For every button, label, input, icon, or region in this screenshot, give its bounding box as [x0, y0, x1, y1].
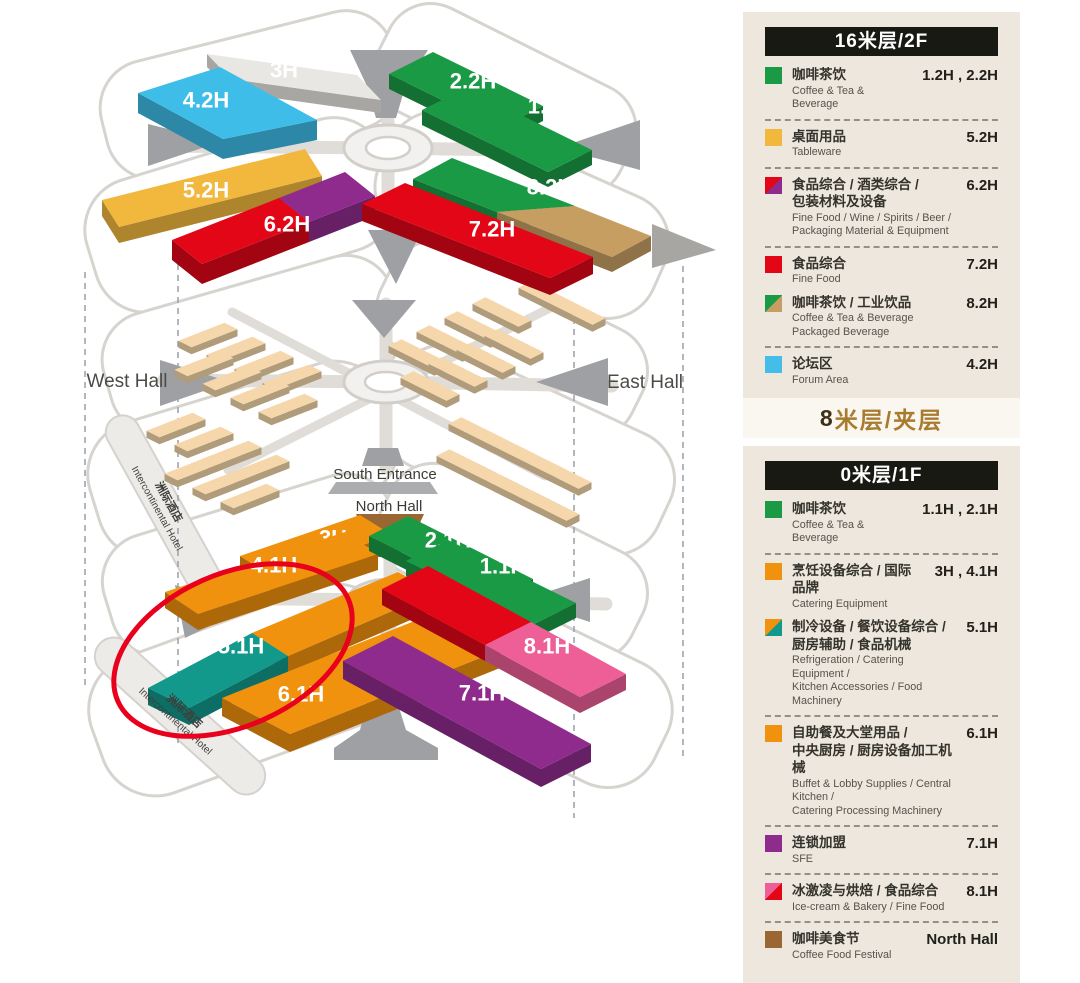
category-name-cn: 冰激凌与烘焙 / 食品综合 [792, 882, 956, 900]
mezzanine-title: 8 [820, 405, 835, 432]
category-name-cn: 连锁加盟 [792, 834, 956, 852]
legend-item-3H-4.1H: 烹饪设备综合 / 国际品牌Catering Equipment3H , 4.1H [765, 562, 998, 612]
hall-code: 1.1H , 2.1H [922, 501, 998, 518]
legend-item-4.2H: 论坛区Forum Area4.2H [765, 355, 998, 387]
legend-header-2f: 16米层/2F [765, 27, 998, 56]
category-name-cn: 自助餐及大堂用品 /中央厨房 / 厨房设备加工机械 [792, 724, 956, 777]
category-swatch [765, 835, 782, 852]
hall-code: North Hall [926, 931, 998, 948]
category-name-en: Refrigeration / Catering Equipment /Kitc… [792, 654, 956, 708]
dashed-separator [765, 825, 998, 827]
hall-label-7.1H: 7.1H [459, 681, 505, 706]
category-name-en: Fine Food / Wine / Spirits / Beer /Packa… [792, 212, 956, 239]
east-hall-label: East Hall [607, 372, 683, 393]
north-hall-label: North Hall [356, 498, 423, 515]
ramp-2f-east [652, 224, 716, 268]
category-name-en: Tableware [792, 146, 956, 159]
category-swatch [765, 883, 782, 900]
legend-item-7.1H: 连锁加盟SFE7.1H [765, 834, 998, 866]
dashed-separator [765, 246, 998, 248]
hall-code: 6.2H [966, 177, 998, 194]
dashed-separator [765, 553, 998, 555]
legend-item-5.2H: 桌面用品Tableware5.2H [765, 128, 998, 160]
hall-label-5.1H: 5.1H [218, 634, 264, 659]
category-swatch [765, 67, 782, 84]
hall-label-7.2H: 7.2H [469, 217, 515, 242]
category-name-en: Coffee & Tea & Beverage [792, 519, 912, 546]
category-name-cn: 食品综合 / 酒类综合 /包装材料及设备 [792, 176, 956, 211]
category-name-cn: 咖啡茶饮 [792, 500, 912, 518]
dashed-separator [765, 346, 998, 348]
category-swatch [765, 725, 782, 742]
category-swatch [765, 295, 782, 312]
hall-label-4.2H: 4.2H [183, 88, 229, 113]
hall-label-8.1H: 8.1H [524, 634, 570, 659]
hall-label-8.2H: 8.2H [527, 175, 573, 200]
category-swatch [765, 501, 782, 518]
west-hall-label: West Hall [87, 371, 168, 392]
category-name-cn: 烹饪设备综合 / 国际品牌 [792, 562, 925, 597]
category-name-en: Catering Equipment [792, 598, 925, 611]
hall-label-5.2H: 5.2H [183, 178, 229, 203]
legend-section-2f: 16米层/2F 咖啡茶饮Coffee & Tea & Beverage1.2H … [743, 12, 1020, 408]
venue-map: 3H4.2H2.2H1.2H5.2H6.2H8.2H7.2H3H4.1H2.1H… [0, 0, 745, 907]
category-name-cn: 咖啡美食节 [792, 930, 916, 948]
south-entrance-label: South Entrance [333, 466, 436, 483]
category-name-en: Coffee & Tea & BeveragePackaged Beverage [792, 312, 956, 339]
category-name-en: Ice-cream & Bakery / Fine Food [792, 901, 956, 914]
category-swatch [765, 256, 782, 273]
category-name-cn: 桌面用品 [792, 128, 956, 146]
legend-item-1.2H-2.2H: 咖啡茶饮Coffee & Tea & Beverage1.2H , 2.2H [765, 66, 998, 112]
category-swatch [765, 931, 782, 948]
category-name-en: Coffee Food Festival [792, 949, 916, 962]
hall-code: 4.2H [966, 356, 998, 373]
hall-label-3H: 3H [270, 58, 298, 83]
legend-item-6.1H: 自助餐及大堂用品 /中央厨房 / 厨房设备加工机械Buffet & Lobby … [765, 724, 998, 818]
hall-code: 6.1H [966, 725, 998, 742]
hall-code: 7.1H [966, 835, 998, 852]
legend-item-7.2H: 食品综合Fine Food7.2H [765, 255, 998, 287]
category-name-en: Fine Food [792, 273, 956, 286]
legend-item-5.1H: 制冷设备 / 餐饮设备综合 /厨房辅助 / 食品机械Refrigeration … [765, 618, 998, 708]
hall-label-1.1H: 1.1H [480, 554, 526, 579]
dashed-separator [765, 167, 998, 169]
category-name-en: Buffet & Lobby Supplies / Central Kitche… [792, 778, 956, 818]
category-swatch [765, 129, 782, 146]
category-name-cn: 食品综合 [792, 255, 956, 273]
legend-item-North-Hall: 咖啡美食节Coffee Food FestivalNorth Hall [765, 930, 998, 962]
hall-label-6.2H: 6.2H [264, 212, 310, 237]
category-name-cn: 咖啡茶饮 / 工业饮品 [792, 294, 956, 312]
hall-code: 8.2H [966, 295, 998, 312]
legend-item-6.2H: 食品综合 / 酒类综合 /包装材料及设备Fine Food / Wine / S… [765, 176, 998, 239]
hall-code: 8.1H [966, 883, 998, 900]
category-name-cn: 咖啡茶饮 [792, 66, 912, 84]
category-swatch [765, 356, 782, 373]
south-entrance-platform [328, 482, 438, 494]
hall-code: 1.2H , 2.2H [922, 67, 998, 84]
dashed-separator [765, 873, 998, 875]
hall-label-1.2H: 1.2H [528, 94, 574, 119]
hall-label-2.2H: 2.2H [450, 69, 496, 94]
legend-item-8.2H: 咖啡茶饮 / 工业饮品Coffee & Tea & BeveragePackag… [765, 294, 998, 340]
mezzanine-strip: 8米层/夹层 [743, 398, 1020, 438]
category-name-cn: 制冷设备 / 餐饮设备综合 /厨房辅助 / 食品机械 [792, 618, 956, 653]
hall-code: 5.2H [966, 129, 998, 146]
south-entrance-arrow [362, 448, 404, 466]
dashed-separator [765, 921, 998, 923]
hall-code: 7.2H [966, 256, 998, 273]
category-swatch [765, 177, 782, 194]
dashed-separator [765, 715, 998, 717]
dashed-separator [765, 119, 998, 121]
legend-section-1f: 0米层/1F 咖啡茶饮Coffee & Tea & Beverage1.1H ,… [743, 446, 1020, 983]
category-swatch [765, 619, 782, 636]
legend-header-1f: 0米层/1F [765, 461, 998, 490]
category-name-cn: 论坛区 [792, 355, 956, 373]
hall-code: 3H , 4.1H [935, 563, 998, 580]
hall-code: 5.1H [966, 619, 998, 636]
legend-item-8.1H: 冰激凌与烘焙 / 食品综合Ice-cream & Bakery / Fine F… [765, 882, 998, 914]
category-name-en: Forum Area [792, 374, 956, 387]
category-swatch [765, 563, 782, 580]
category-name-en: Coffee & Tea & Beverage [792, 85, 912, 112]
legend-item-1.1H-2.1H: 咖啡茶饮Coffee & Tea & Beverage1.1H , 2.1H [765, 500, 998, 546]
category-name-en: SFE [792, 853, 956, 866]
